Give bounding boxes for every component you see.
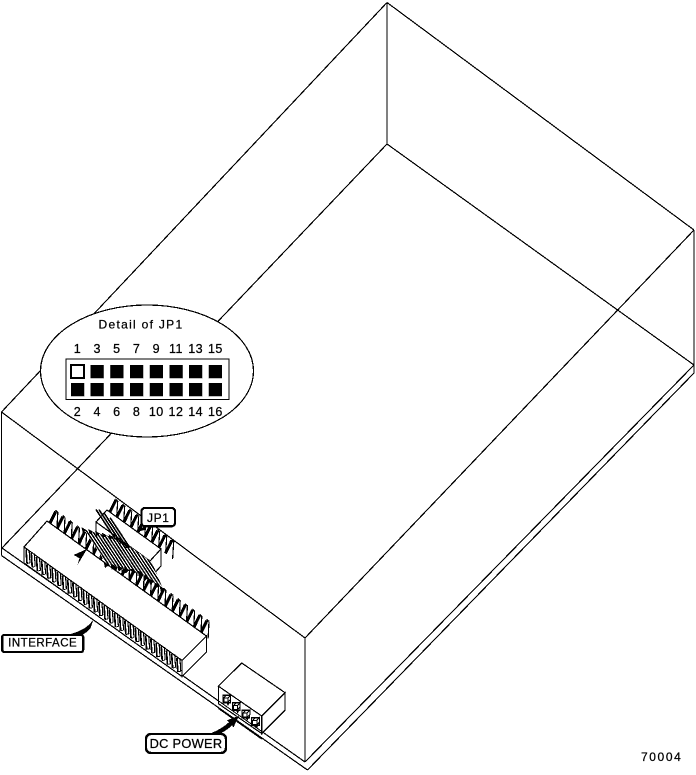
svg-text:4: 4 <box>93 405 100 419</box>
svg-text:DC POWER: DC POWER <box>150 736 223 751</box>
svg-text:1: 1 <box>74 342 81 356</box>
svg-text:11: 11 <box>169 342 183 356</box>
svg-text:2: 2 <box>74 405 81 419</box>
svg-text:JP1: JP1 <box>147 511 169 525</box>
svg-text:13: 13 <box>188 342 203 356</box>
svg-text:INTERFACE: INTERFACE <box>8 638 77 650</box>
svg-text:7: 7 <box>133 342 140 356</box>
svg-text:14: 14 <box>188 405 203 419</box>
svg-text:8: 8 <box>133 405 140 419</box>
svg-text:Detail of JP1: Detail of JP1 <box>99 318 184 332</box>
svg-text:6: 6 <box>113 405 120 419</box>
svg-text:70004: 70004 <box>641 750 682 764</box>
svg-text:10: 10 <box>149 405 164 419</box>
svg-text:12: 12 <box>169 405 184 419</box>
svg-text:5: 5 <box>113 342 120 356</box>
svg-text:3: 3 <box>93 342 100 356</box>
svg-text:9: 9 <box>153 342 160 356</box>
svg-text:16: 16 <box>208 405 223 419</box>
svg-text:15: 15 <box>208 342 223 356</box>
